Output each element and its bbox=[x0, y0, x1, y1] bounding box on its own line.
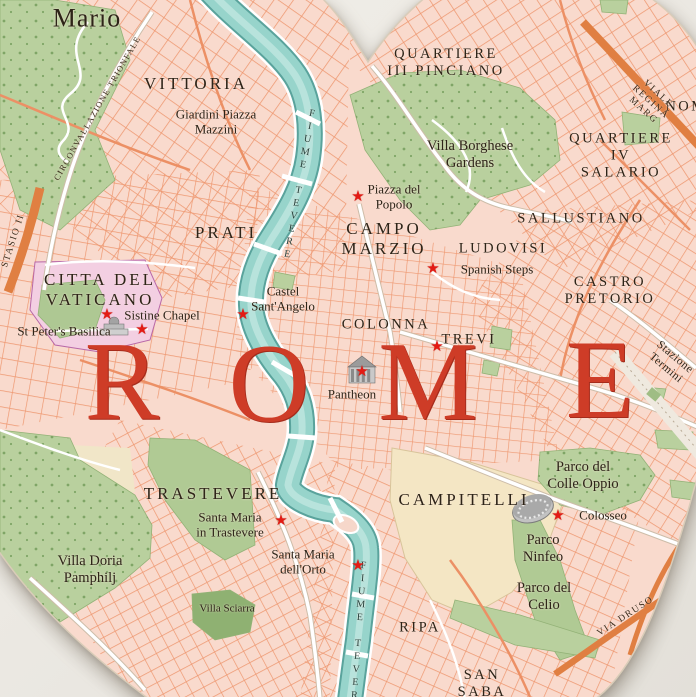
rome-heart-map-print: MarioVITTORIAGiardini Piazza MazziniQUAR… bbox=[0, 0, 696, 697]
heart-map-svg bbox=[0, 0, 696, 697]
trevi-park-1 bbox=[490, 326, 512, 350]
corner-park bbox=[600, 0, 628, 14]
salario-park bbox=[622, 112, 660, 145]
map-art bbox=[0, 0, 696, 697]
